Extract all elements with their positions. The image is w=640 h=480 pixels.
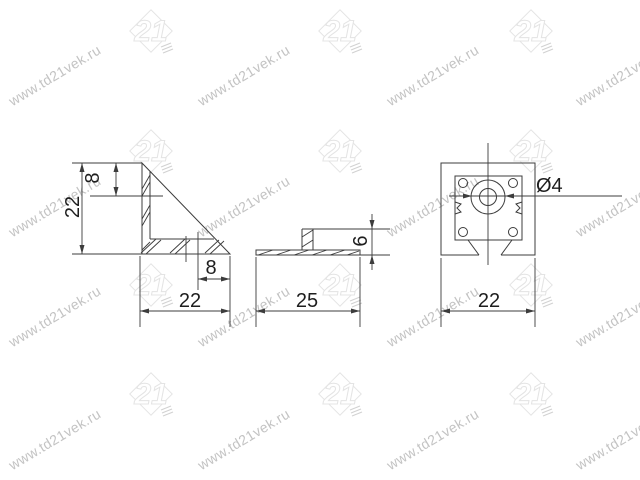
dim-front-height: 6: [350, 214, 375, 270]
dim-top-width: 22: [441, 258, 535, 327]
technical-drawing-canvas: www.td21vek.ruwww.td21vek.ruwww.td21vek.…: [0, 0, 640, 480]
dovetail-notch: [468, 240, 512, 255]
right-clip-notch: [516, 202, 522, 214]
dim-label-side-top-offset: 8: [82, 172, 104, 183]
side-view: 22 8 8 22: [62, 163, 230, 327]
inner-square-outline: [455, 176, 522, 240]
dim-label-hole-diameter: Ø4: [536, 175, 563, 197]
dim-label-front-height: 6: [350, 235, 372, 246]
dim-side-top-offset: 8: [82, 163, 163, 196]
left-clip-notch: [455, 202, 461, 214]
front-view-hatching: [258, 230, 359, 255]
dim-front-width: 25: [256, 257, 360, 327]
front-view: 6 25: [256, 214, 390, 327]
dim-label-side-width: 22: [179, 290, 201, 312]
bracket-drawing: 22 8 8 22: [0, 0, 640, 480]
dim-side-bottom-offset: 8: [198, 232, 230, 290]
dim-label-side-height: 22: [62, 196, 84, 218]
tab-outline: [302, 229, 313, 250]
top-view: Ø4 22: [441, 143, 622, 327]
side-view-hatching: [141, 175, 224, 254]
dim-label-side-bottom-offset: 8: [205, 257, 216, 279]
dim-label-top-width: 22: [478, 290, 500, 312]
dim-label-front-width: 25: [296, 290, 318, 312]
